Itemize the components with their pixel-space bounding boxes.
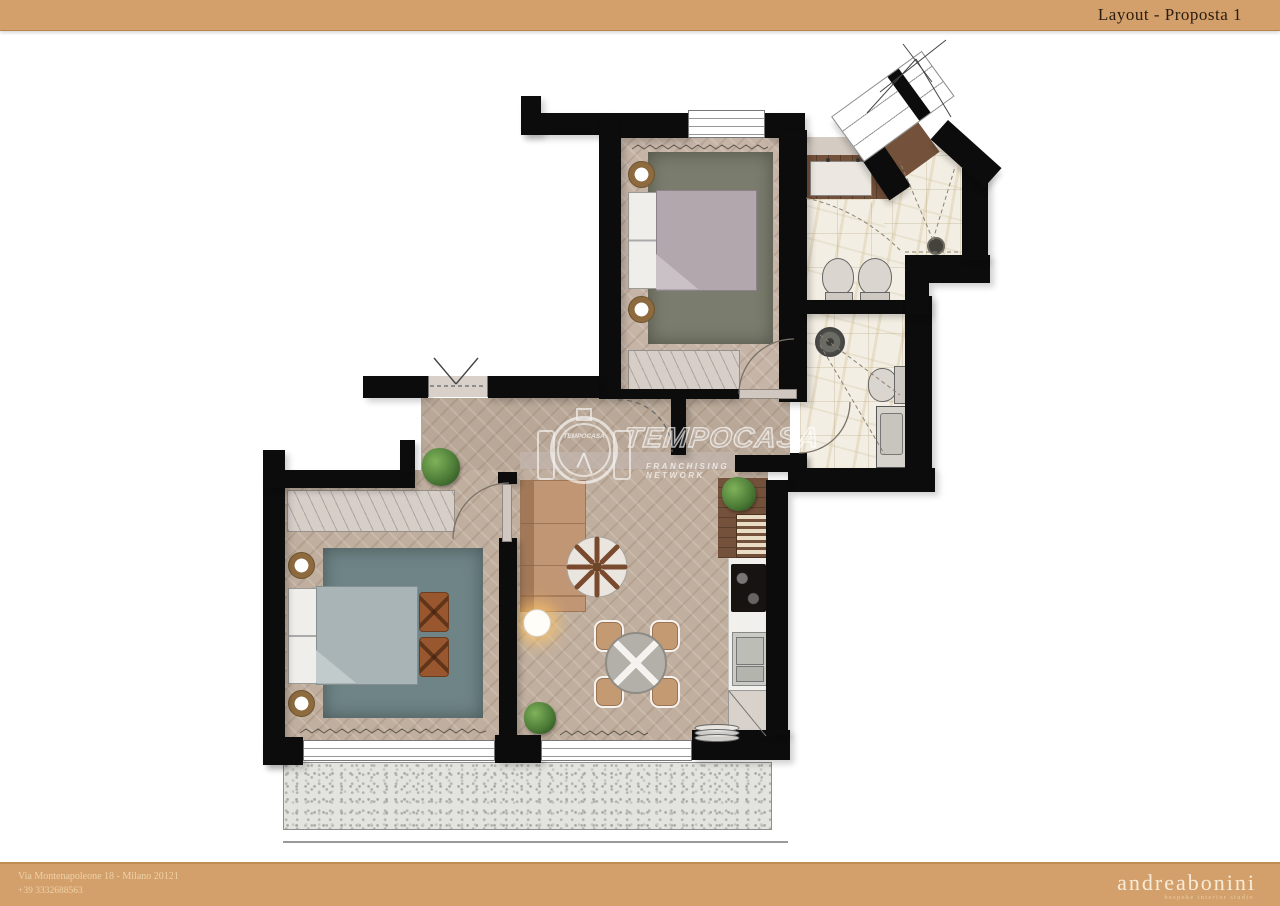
wall-segment — [521, 113, 603, 135]
bay-window-mullion — [888, 68, 931, 120]
floor-lamp — [523, 609, 551, 637]
wall-segment — [263, 470, 415, 488]
wall-segment — [263, 450, 285, 765]
entrance-door — [428, 376, 488, 397]
faucet — [826, 158, 830, 162]
watermark: TEMPOCASA TEMPOCASA FRANCHISING NETWORK — [510, 400, 790, 490]
door-leaf — [502, 484, 512, 542]
wall-segment — [905, 296, 932, 470]
page-title: Layout - Proposta 1 — [1098, 5, 1242, 25]
sofa — [520, 480, 586, 612]
floor-plan: TEMPOCASA TEMPOCASA FRANCHISING NETWORK — [0, 0, 1280, 904]
watermark-subtitle: FRANCHISING NETWORK — [646, 462, 790, 480]
balcony-railing-line — [283, 841, 788, 843]
wall-segment — [788, 468, 935, 492]
toilet — [822, 258, 854, 296]
window — [541, 740, 692, 761]
wall-segment — [263, 737, 303, 765]
watermark-logo-text: TEMPOCASA — [553, 433, 615, 440]
wall-segment — [779, 130, 807, 402]
window — [688, 110, 765, 138]
ottoman — [419, 592, 449, 632]
bed-pillows — [288, 588, 318, 684]
washing-machine-door — [880, 413, 903, 455]
nightstand-lamp — [628, 161, 655, 188]
plant — [524, 702, 556, 734]
wall-segment — [621, 389, 739, 399]
cooktop — [731, 564, 766, 612]
wall-segment — [766, 480, 788, 735]
shower-drain — [927, 237, 945, 255]
door-leaf — [739, 389, 797, 399]
washing-machine — [876, 406, 908, 468]
wall-segment — [400, 440, 415, 472]
clock-icon: TEMPOCASA — [550, 416, 618, 484]
wall-segment — [800, 300, 910, 314]
wall-segment — [488, 376, 599, 398]
nightstand-lamp — [288, 552, 315, 579]
shelf-ladder — [736, 514, 768, 558]
bed-pillows — [628, 192, 658, 289]
wardrobe — [287, 490, 455, 532]
footer-phone: +39 3332688563 — [18, 886, 83, 896]
nightstand-lamp — [628, 296, 655, 323]
wall-segment — [599, 113, 621, 399]
watermark-brand: TEMPOCASA — [623, 422, 822, 454]
page-header: Layout - Proposta 1 — [0, 0, 1280, 31]
sink-basin — [736, 637, 764, 665]
wall-segment — [621, 113, 688, 138]
footer-address: Via Montenapoleone 18 - Milano 20121 — [18, 871, 179, 882]
shower-head — [815, 327, 845, 357]
dining-table — [605, 632, 667, 694]
washbasin — [810, 161, 872, 196]
faucet — [856, 158, 860, 162]
floor-plan-page: { "header": { "title": "Layout - Propost… — [0, 0, 1280, 904]
sink — [732, 632, 768, 686]
sink-basin — [736, 666, 764, 682]
window — [303, 740, 495, 761]
wall-segment — [363, 376, 428, 398]
ottoman — [419, 637, 449, 677]
wardrobe — [628, 350, 740, 394]
wall-segment — [905, 283, 929, 315]
brand-tagline: bespoke interior studio — [1165, 895, 1255, 901]
page-footer: Via Montenapoleone 18 - Milano 20121 +39… — [0, 862, 1280, 906]
bidet — [858, 258, 892, 296]
balcony — [283, 762, 772, 830]
brand-logo: andreabonini — [1117, 870, 1256, 896]
wall-segment — [495, 735, 541, 763]
wall-segment — [499, 538, 517, 740]
nightstand-lamp — [288, 690, 315, 717]
plant — [422, 448, 460, 486]
